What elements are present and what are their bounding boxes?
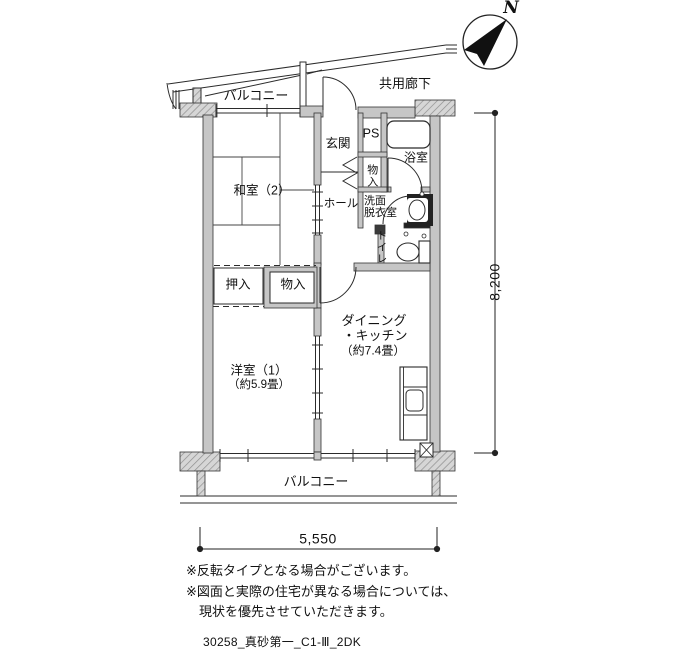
note-line-2: ※図面と実際の住宅が異なる場合については、	[186, 582, 456, 603]
oshiire-label: 押入	[225, 278, 250, 291]
dk-label-line3: （約7.4畳）	[341, 345, 406, 358]
room-label-genkan: 玄関	[325, 137, 350, 150]
kitchen-counter	[400, 367, 427, 440]
plan-id-footer: 30258_真砂第一_C1-Ⅲ_2DK	[203, 633, 361, 650]
balcony-top-label: バルコニー	[224, 89, 289, 103]
balcony-bottom-label: バルコニー	[284, 475, 349, 489]
room-label-washitsu: 和室（2）	[234, 184, 291, 197]
corridor-label: 共用廊下	[379, 77, 431, 91]
dk-label-line2: ・キッチン	[342, 329, 407, 343]
storage-lower-label: 物入	[280, 278, 305, 291]
dimension-height-label: 8,200	[488, 263, 503, 301]
note-line-1: ※反転タイプとなる場合がございます。	[186, 561, 456, 582]
washroom-label: 洗面 脱衣室	[364, 195, 397, 219]
yoshitsu-label-line2: （約5.9畳）	[228, 379, 290, 391]
dk-label-line1: ダイニング	[341, 314, 406, 328]
note-line-3: 現状を優先させていただきます。	[199, 602, 456, 623]
washbasin	[404, 192, 433, 236]
north-arrow-icon	[463, 15, 517, 69]
toilet	[397, 234, 430, 263]
duct-box	[420, 443, 433, 457]
north-label: N	[503, 0, 519, 18]
room-label-bath: 浴室	[404, 152, 428, 165]
toilet-label: トイレ	[375, 230, 386, 265]
bathtub	[387, 121, 430, 148]
storage-upper-label: 物入	[365, 164, 377, 188]
disclaimer-notes: ※反転タイプとなる場合がございます。 ※図面と実際の住宅が異なる場合については、…	[186, 561, 456, 623]
dimension-width-label: 5,550	[299, 532, 337, 547]
floor-plan-page: N 共用廊下 バルコニー 和室（2） 玄関 PS 浴室 物入 ホール 洗面 脱衣…	[0, 0, 700, 650]
hall-label: ホール	[324, 198, 359, 210]
room-label-ps: PS	[363, 127, 380, 140]
washroom-label-line1: 洗面	[364, 195, 397, 207]
yoshitsu-label-line1: 洋室（1）	[231, 364, 288, 377]
bifold-door	[343, 157, 357, 189]
washroom-label-line2: 脱衣室	[364, 207, 397, 219]
